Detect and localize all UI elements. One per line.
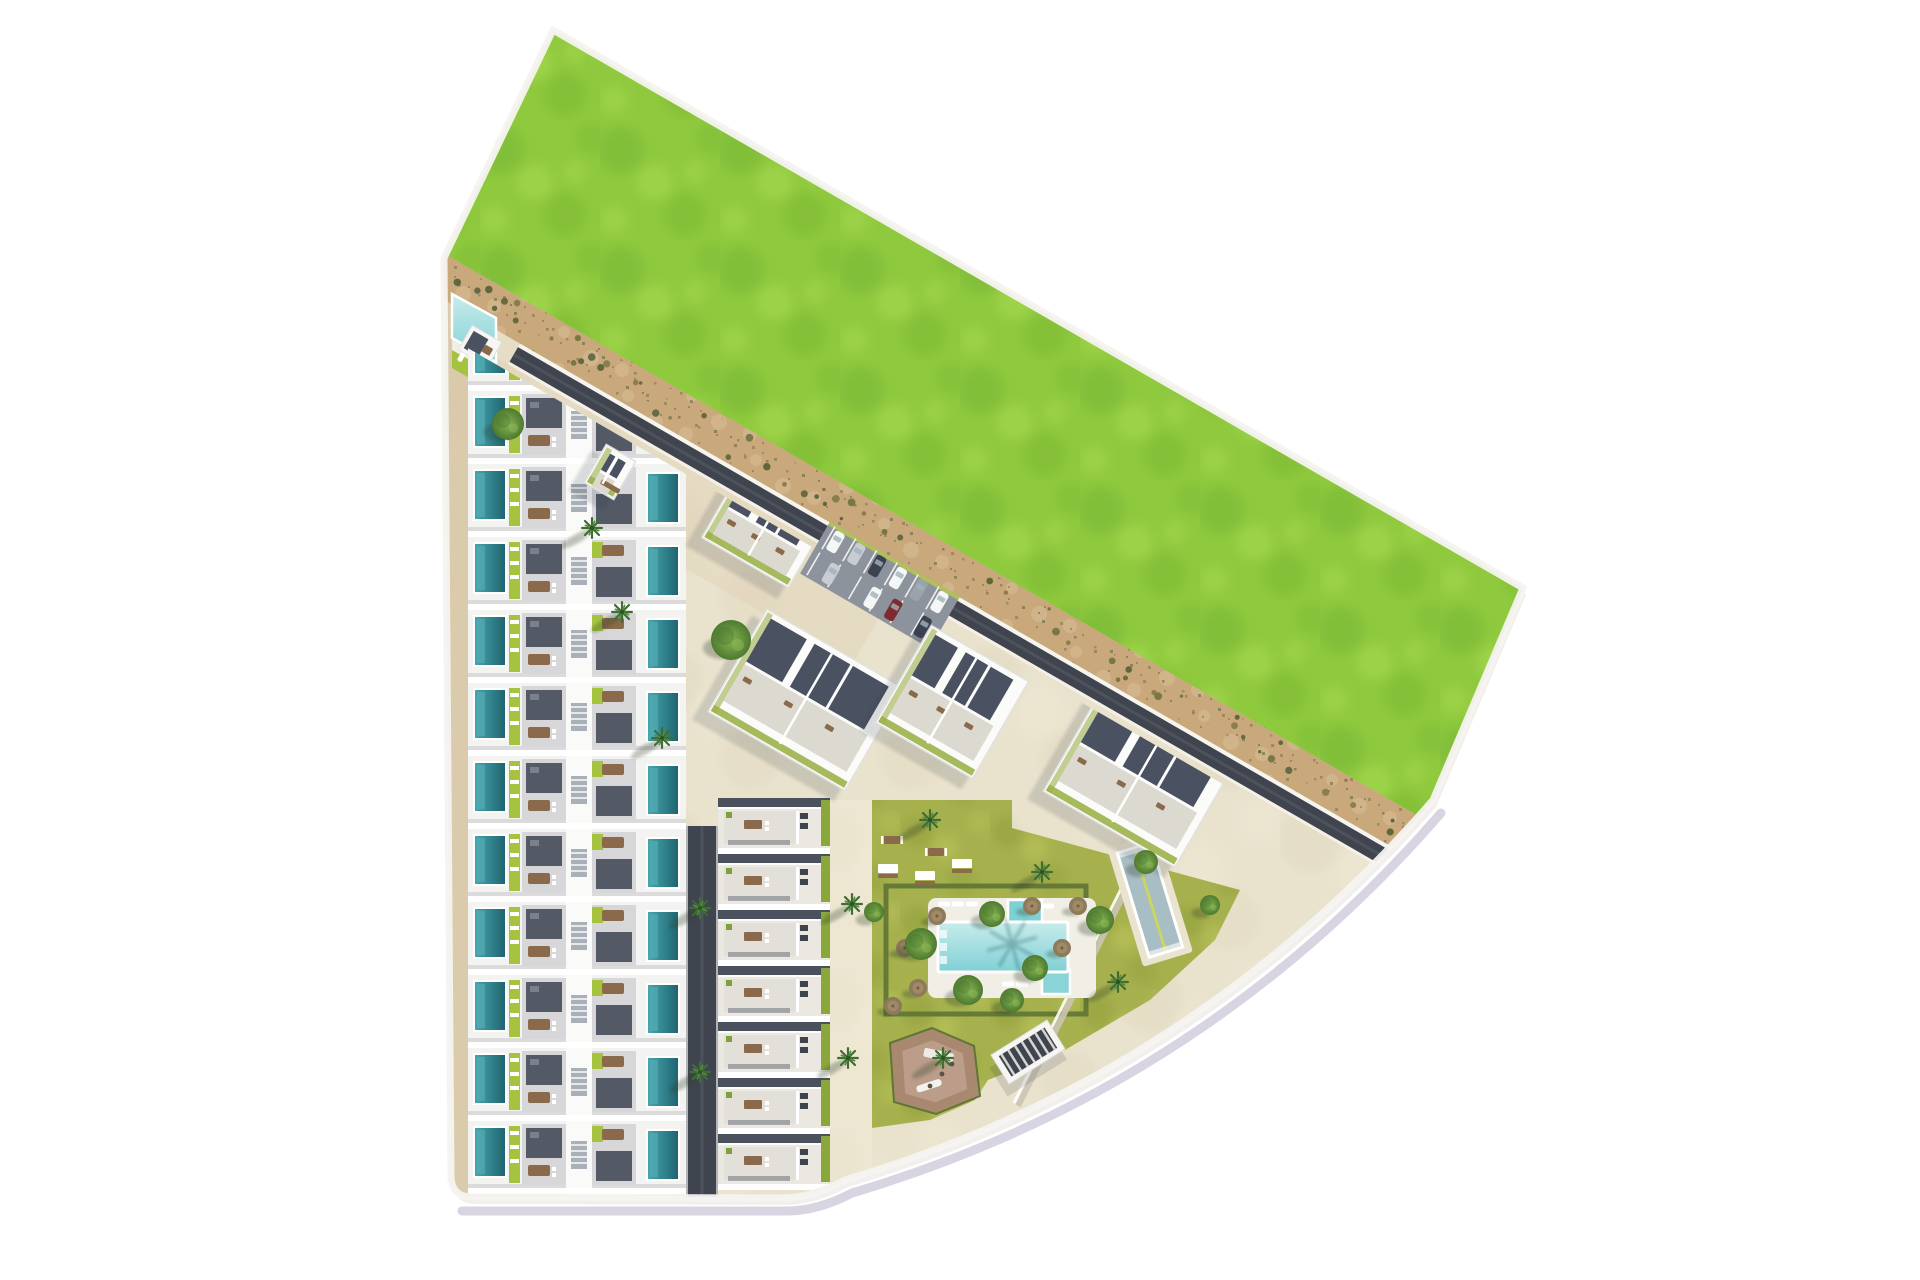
apartment-row	[718, 798, 830, 854]
roof-vent	[530, 1132, 539, 1138]
ac-unit	[800, 1037, 808, 1043]
roof	[718, 966, 830, 975]
dining-set	[528, 435, 550, 446]
ac-unit	[800, 981, 808, 987]
courtyard	[728, 1008, 790, 1013]
dining-set	[528, 1092, 550, 1103]
row-divider	[468, 1188, 686, 1194]
apartment-row	[718, 1134, 830, 1190]
pool-steps	[940, 943, 947, 951]
pool-steps	[940, 956, 947, 964]
roof	[718, 854, 830, 863]
dining-set	[602, 764, 624, 775]
townhouse-row	[468, 537, 686, 610]
sun-lounger	[938, 902, 950, 907]
lawn-strip	[592, 907, 603, 923]
garden-bench	[952, 859, 972, 873]
ac-unit	[800, 823, 808, 829]
sun-lounger	[510, 1013, 519, 1017]
sun-lounger	[510, 488, 519, 492]
roof-vent	[530, 621, 539, 627]
apartment-row	[718, 854, 830, 910]
roof	[596, 1078, 632, 1108]
dining-set	[744, 1044, 762, 1053]
dining-set	[602, 545, 624, 556]
apartment-row	[718, 966, 830, 1022]
courtyard	[728, 1120, 790, 1125]
row-divider	[718, 904, 830, 910]
apartment-row	[718, 910, 830, 966]
dining-set	[528, 946, 550, 957]
roof-vent	[530, 402, 539, 408]
sun-lounger	[510, 547, 519, 551]
sun-lounger	[510, 561, 519, 565]
dining-set	[602, 1129, 624, 1140]
planter	[726, 980, 732, 986]
sun-lounger	[510, 839, 519, 843]
roof	[596, 1005, 632, 1035]
ac-unit	[800, 869, 808, 875]
townhouse-row	[468, 610, 686, 683]
dining-set	[528, 727, 550, 738]
ac-unit	[800, 1103, 808, 1109]
dining-set	[744, 820, 762, 829]
dining-set	[744, 1100, 762, 1109]
lawn-strip	[592, 1053, 603, 1069]
dining-set	[528, 581, 550, 592]
sun-lounger	[510, 648, 519, 652]
sun-lounger	[510, 780, 519, 784]
courtyard	[728, 840, 790, 845]
townhouse-row	[468, 1048, 686, 1121]
site-plan-rendering	[0, 0, 1920, 1280]
roof	[718, 1022, 830, 1031]
sun-lounger	[510, 1086, 519, 1090]
dining-set	[744, 932, 762, 941]
roof-vent	[530, 913, 539, 919]
roof-vent	[530, 986, 539, 992]
row-divider	[468, 969, 686, 975]
sun-lounger	[510, 1145, 519, 1149]
planter	[726, 812, 732, 818]
hedge-strip	[821, 800, 830, 846]
row-divider	[468, 604, 686, 610]
dining-set	[602, 1056, 624, 1067]
roof	[596, 859, 632, 889]
sun-lounger	[510, 707, 519, 711]
sun-lounger	[510, 1131, 519, 1135]
roof	[718, 798, 830, 807]
roof	[596, 932, 632, 962]
sun-lounger	[510, 926, 519, 930]
roof	[596, 567, 632, 597]
garden-bench	[915, 871, 935, 885]
row-divider	[468, 458, 686, 464]
dining-set	[744, 876, 762, 885]
planter	[726, 1148, 732, 1154]
dining-set	[602, 837, 624, 848]
row-divider	[468, 823, 686, 829]
roof	[718, 1078, 830, 1087]
ac-unit	[800, 935, 808, 941]
dining-set	[528, 654, 550, 665]
sun-lounger	[952, 902, 964, 907]
sun-lounger	[510, 474, 519, 478]
dining-set	[528, 1165, 550, 1176]
roof	[718, 1134, 830, 1143]
planter	[726, 1092, 732, 1098]
roof-vent	[530, 840, 539, 846]
row-divider	[468, 1042, 686, 1048]
sun-lounger	[510, 1159, 519, 1163]
roof-vent	[530, 694, 539, 700]
dining-set	[744, 988, 762, 997]
dining-set	[602, 910, 624, 921]
courtyard	[728, 1176, 790, 1181]
lawn-strip	[592, 542, 603, 558]
planter	[726, 1036, 732, 1042]
roof	[718, 910, 830, 919]
lawn-strip	[592, 1126, 603, 1142]
townhouse-row	[468, 464, 686, 537]
townhouse-row	[468, 902, 686, 975]
sun-lounger	[510, 853, 519, 857]
roof-vent	[530, 767, 539, 773]
dining-set	[528, 873, 550, 884]
hedge-strip	[821, 1080, 830, 1126]
dining-set	[528, 508, 550, 519]
townhouse-row	[468, 756, 686, 829]
sun-lounger	[510, 634, 519, 638]
ac-unit	[800, 925, 808, 931]
garden-walkway	[830, 800, 872, 1190]
sun-lounger	[510, 999, 519, 1003]
roof-vent	[530, 475, 539, 481]
townhouse-row	[468, 1121, 686, 1194]
pool-steps	[940, 930, 947, 938]
planter	[726, 924, 732, 930]
row-divider	[468, 1115, 686, 1121]
dining-set	[602, 691, 624, 702]
row-divider	[718, 960, 830, 966]
lawn-strip	[592, 761, 603, 777]
ac-unit	[800, 1159, 808, 1165]
sun-lounger	[510, 693, 519, 697]
dining-set	[744, 1156, 762, 1165]
dining-set	[602, 983, 624, 994]
hedge-strip	[821, 856, 830, 902]
apartment-row	[718, 1078, 830, 1134]
ac-unit	[800, 1047, 808, 1053]
ac-unit	[800, 813, 808, 819]
roof	[596, 640, 632, 670]
sun-lounger	[510, 940, 519, 944]
sun-lounger	[510, 794, 519, 798]
lawn-strip	[592, 834, 603, 850]
garden-bench	[878, 864, 898, 878]
row-divider	[468, 750, 686, 756]
sun-lounger	[510, 1058, 519, 1062]
row-divider	[718, 1016, 830, 1022]
dining-set	[528, 800, 550, 811]
sun-lounger	[510, 620, 519, 624]
ac-unit	[800, 1149, 808, 1155]
roof-vent	[530, 1059, 539, 1065]
sun-lounger	[510, 1072, 519, 1076]
planter	[726, 868, 732, 874]
sun-lounger	[1002, 982, 1014, 987]
lawn-strip	[592, 688, 603, 704]
row-divider	[718, 1128, 830, 1134]
sun-lounger	[510, 502, 519, 506]
row-divider	[468, 677, 686, 683]
sun-lounger	[510, 766, 519, 770]
site-plan-svg	[0, 0, 1920, 1280]
site-area	[354, 0, 1919, 1280]
townhouse-row	[468, 975, 686, 1048]
sun-lounger	[510, 575, 519, 579]
apartment-row	[718, 1022, 830, 1078]
courtyard	[728, 952, 790, 957]
ac-unit	[800, 1093, 808, 1099]
picnic-table	[925, 848, 947, 856]
hedge-strip	[821, 1136, 830, 1182]
dining-set	[528, 1019, 550, 1030]
sun-lounger	[510, 912, 519, 916]
sun-lounger	[966, 902, 978, 907]
roof-vent	[530, 548, 539, 554]
townhouse-row	[468, 829, 686, 902]
hedge-strip	[821, 968, 830, 1014]
row-divider	[468, 896, 686, 902]
row-divider	[718, 1072, 830, 1078]
courtyard	[728, 1064, 790, 1069]
sun-lounger	[510, 867, 519, 871]
lawn-strip	[592, 980, 603, 996]
roof	[596, 1151, 632, 1181]
courtyard	[728, 896, 790, 901]
row-divider	[718, 1184, 830, 1190]
roof	[596, 713, 632, 743]
roof	[596, 786, 632, 816]
hedge-strip	[821, 1024, 830, 1070]
sun-lounger	[510, 985, 519, 989]
sun-lounger	[510, 721, 519, 725]
sun-lounger	[510, 401, 519, 405]
row-divider	[718, 848, 830, 854]
ac-unit	[800, 879, 808, 885]
ac-unit	[800, 991, 808, 997]
sun-lounger	[1042, 904, 1054, 909]
